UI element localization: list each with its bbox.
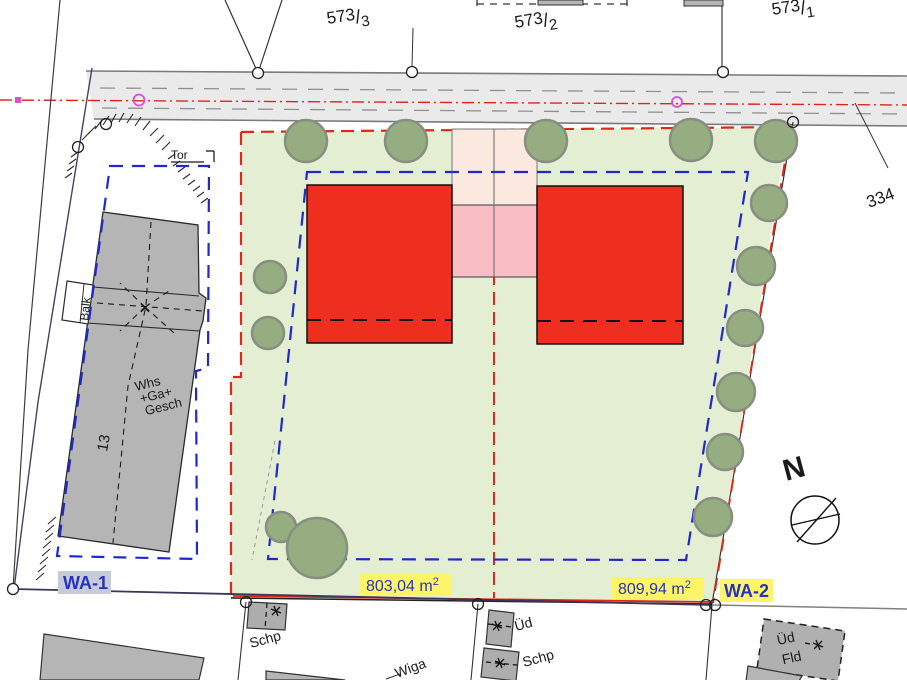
ued-building xyxy=(486,610,514,647)
leader-573-3 xyxy=(412,28,413,67)
tree xyxy=(727,310,763,346)
shed-right-label: Schp xyxy=(521,646,556,670)
parcel-line xyxy=(471,604,478,680)
tree xyxy=(707,434,743,470)
southwest-building xyxy=(40,634,204,680)
tree xyxy=(254,261,286,293)
shed-left-label: Schp xyxy=(248,627,283,651)
top-building-gray xyxy=(538,0,583,5)
south-center-building xyxy=(266,671,345,680)
site-plan-map: N 573/3 573/2 573/1 334 Tor Balk 13 Whs … xyxy=(0,0,907,680)
existing-main-building xyxy=(57,151,214,559)
area-left-label: 803,04 m2 xyxy=(366,576,439,595)
survey-point xyxy=(8,584,19,595)
top-building-gray xyxy=(684,0,723,6)
tree xyxy=(751,185,787,221)
tree xyxy=(717,373,755,411)
tree xyxy=(385,120,427,162)
north-label: N xyxy=(779,450,808,487)
survey-point xyxy=(718,67,729,78)
road xyxy=(0,71,907,126)
wa1-label: WA-1 xyxy=(63,573,108,593)
parcel-line xyxy=(225,0,258,73)
parcel-label-573-1: 573/1 xyxy=(770,0,816,27)
survey-point xyxy=(407,67,418,78)
balcony-label: Balk xyxy=(77,296,93,322)
south-boundary-gray xyxy=(712,605,907,609)
parcel-label-334: 334 xyxy=(864,184,897,212)
road-surface xyxy=(86,71,907,126)
embankment-hatch-bottom xyxy=(36,517,56,580)
wa2-label: WA-2 xyxy=(724,581,769,601)
survey-point xyxy=(253,68,264,79)
ued-label: Üd xyxy=(512,613,534,634)
centerline-marker-square xyxy=(15,97,21,103)
parcel-label-573-3: 573/3 xyxy=(325,3,371,36)
wiga-label: Wiga xyxy=(393,655,429,680)
parcel-line xyxy=(706,605,712,680)
boundary-line-outer xyxy=(13,0,60,589)
tree xyxy=(285,120,327,162)
tree xyxy=(737,247,775,285)
parcel-line xyxy=(258,0,282,73)
gate-label: Tor xyxy=(171,148,188,162)
compass: N xyxy=(779,450,840,544)
parcel-line xyxy=(238,602,246,680)
tree xyxy=(252,317,284,349)
area-right-label: 809,94 m2 xyxy=(618,579,691,598)
parcel-label-573-2: 573/2 xyxy=(513,6,559,40)
tree xyxy=(694,498,732,536)
tree xyxy=(287,518,347,578)
house-number-label: 13 xyxy=(94,433,114,452)
tree xyxy=(670,119,712,161)
tree xyxy=(525,120,567,162)
south-strip xyxy=(13,589,907,680)
compass-needle xyxy=(792,514,840,525)
